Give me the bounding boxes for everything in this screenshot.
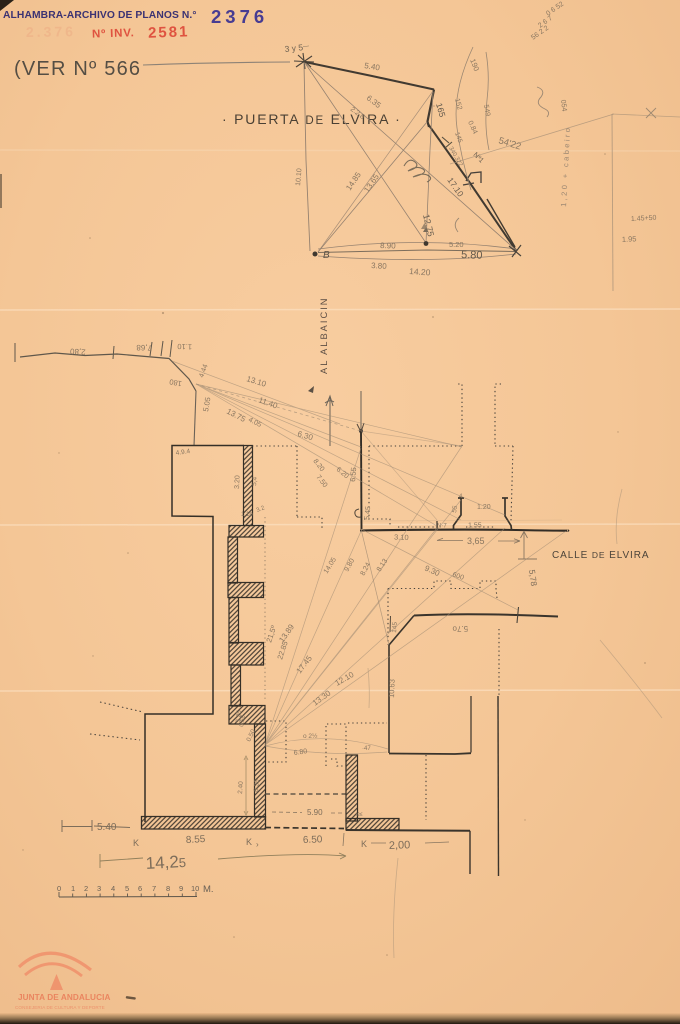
svg-text:6: 6 <box>138 884 142 893</box>
svg-text:5.20: 5.20 <box>449 240 464 249</box>
svg-text:M.: M. <box>203 884 214 895</box>
svg-text:1.1b: 1.1b <box>241 512 253 518</box>
svg-text:(VER Nº 566: (VER Nº 566 <box>14 58 141 80</box>
svg-text:K: K <box>361 839 367 849</box>
svg-text:5.7o: 5.7o <box>452 624 468 634</box>
svg-text:o 2½: o 2½ <box>303 732 318 740</box>
svg-text:2: 2 <box>84 884 88 893</box>
svg-text:5.90: 5.90 <box>307 808 323 817</box>
svg-text:2.376: 2.376 <box>26 23 76 40</box>
svg-text:9: 9 <box>179 884 183 893</box>
svg-text:1.45+50: 1.45+50 <box>631 215 657 223</box>
svg-text:2.40: 2.40 <box>237 781 245 794</box>
svg-text:B: B <box>323 250 330 261</box>
svg-text:AL ALBAICIN: AL ALBAICIN <box>319 297 329 374</box>
svg-text:14,25: 14,25 <box>145 852 186 873</box>
svg-text:3.25: 3.25 <box>235 710 243 724</box>
svg-text:145: 145 <box>391 621 399 633</box>
svg-text:CALLE DE ELVIRA: CALLE DE ELVIRA <box>552 550 649 561</box>
svg-text:8.90: 8.90 <box>380 241 396 251</box>
svg-text:5: 5 <box>125 884 129 893</box>
svg-text:K: K <box>133 838 139 848</box>
svg-text:6.50: 6.50 <box>303 834 323 846</box>
svg-text:3.10: 3.10 <box>394 533 409 543</box>
svg-text:5.40: 5.40 <box>97 822 117 833</box>
svg-text:0: 0 <box>57 884 61 893</box>
svg-text:3: 3 <box>97 884 101 893</box>
svg-text:›: › <box>256 840 259 849</box>
svg-text:2581: 2581 <box>148 23 190 41</box>
svg-text:CONSEJERIA DE CULTURA Y DEPORT: CONSEJERIA DE CULTURA Y DEPORTE <box>15 1005 105 1010</box>
svg-text:5.80: 5.80 <box>461 249 483 262</box>
svg-text:8.55: 8.55 <box>186 834 206 846</box>
svg-text:2,00: 2,00 <box>389 839 411 852</box>
svg-text:1: 1 <box>71 884 75 893</box>
svg-text:7,68: 7,68 <box>136 343 152 352</box>
svg-text:·47: ·47 <box>362 746 371 752</box>
svg-text:K: K <box>246 837 252 847</box>
svg-text:2,80: 2,80 <box>69 347 86 357</box>
svg-text:054: 054 <box>559 99 567 112</box>
svg-text:ALHAMBRA-ARCHIVO DE PLANOS N.°: ALHAMBRA-ARCHIVO DE PLANOS N.° <box>3 10 197 21</box>
svg-text:4: 4 <box>111 884 115 893</box>
svg-text:10: 10 <box>191 884 199 893</box>
svg-text:6.35: 6.35 <box>253 779 261 792</box>
svg-text:8: 8 <box>166 884 170 893</box>
svg-text:1.20: 1.20 <box>477 504 491 511</box>
svg-text:5.45: 5.45 <box>364 506 372 520</box>
svg-text:5,4: 5,4 <box>251 476 259 486</box>
svg-text:1.95: 1.95 <box>622 234 637 244</box>
svg-text:3,65: 3,65 <box>467 536 485 546</box>
svg-text:3.20: 3.20 <box>234 475 241 489</box>
svg-text:≤≤: ≤≤ <box>356 812 363 818</box>
svg-text:3.80: 3.80 <box>371 261 388 271</box>
svg-text:Nº INV.: Nº INV. <box>92 27 135 40</box>
svg-text:2376: 2376 <box>211 6 268 27</box>
svg-text:10.63: 10.63 <box>387 679 397 698</box>
svg-text:7: 7 <box>152 884 156 893</box>
svg-text:14.20: 14.20 <box>409 266 431 277</box>
svg-text:1.55: 1.55 <box>468 523 482 530</box>
svg-text:JUNTA DE ANDALUCIA: JUNTA DE ANDALUCIA <box>18 993 110 1002</box>
svg-text:1.10: 1.10 <box>177 342 192 352</box>
